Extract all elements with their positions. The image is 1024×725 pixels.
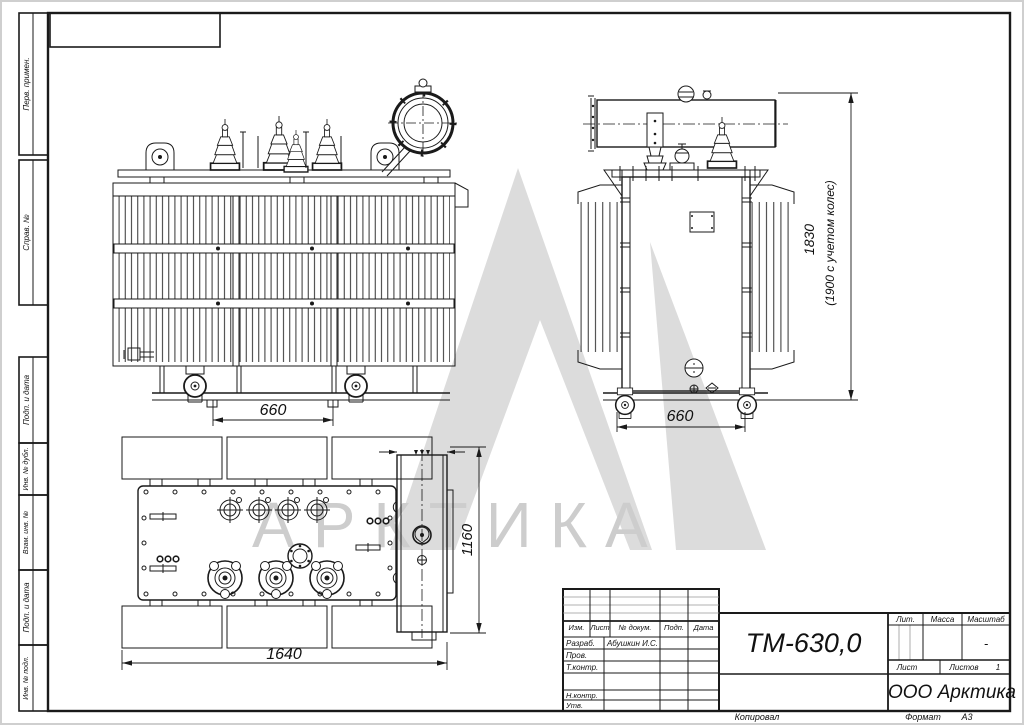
strip-vzam-inv: Взам. инв. № — [20, 495, 34, 570]
manhole — [288, 544, 312, 568]
row-tkontr: Т.контр. — [566, 664, 598, 672]
listov-label: Листов — [942, 664, 986, 672]
cover-bolt-circles — [142, 490, 392, 596]
hv-bushing — [313, 119, 342, 170]
wheel — [738, 388, 757, 419]
strip-podp-data-1: Подп. и дата — [20, 357, 34, 443]
strip-podp-data-2: Подп. и дата — [20, 570, 34, 645]
lifting-lug — [146, 143, 174, 170]
dim-side-660: 660 — [650, 409, 710, 425]
dim-height-1830: 1830 — [802, 192, 816, 287]
dim-front-660: 660 — [243, 403, 303, 419]
cover-fittings — [670, 144, 694, 170]
front-view — [113, 79, 468, 407]
undercarriage — [124, 348, 450, 407]
lv-bushings — [217, 497, 330, 523]
masshtab-value: - — [962, 637, 1010, 650]
razrab-name: Абушкин И.С. — [607, 640, 658, 648]
col-list: Лист — [590, 624, 610, 632]
hv-bushing — [211, 119, 240, 170]
list-label: Лист — [890, 664, 924, 672]
masshtab-label: Масштаб — [962, 616, 1010, 624]
col-data: Дата — [688, 624, 719, 632]
conservator — [583, 86, 788, 151]
row-prov: Пров. — [566, 652, 587, 660]
side-tank — [620, 177, 752, 393]
format-value: А3 — [954, 713, 980, 722]
side-bushing — [708, 117, 737, 168]
strip-perv-primen: Перв. примен. — [20, 13, 34, 155]
listov-value: 1 — [990, 664, 1006, 672]
row-razrab: Разраб. — [566, 640, 595, 648]
strip-inv-dubl: Инв. № дубл. — [20, 443, 34, 495]
dim-top-1640: 1640 — [254, 647, 314, 663]
format-label: Формат — [885, 713, 961, 722]
row-utv: Утв. — [566, 702, 583, 710]
top-left-stamp-box — [50, 13, 220, 47]
drawing-sheet: АРКТИКА — [0, 0, 1024, 725]
top-view — [122, 437, 453, 648]
kopiroval-label: Копировал — [707, 713, 807, 722]
company-name: ООО Арктика — [888, 683, 1010, 702]
dimension-lines — [122, 93, 858, 670]
strip-sprav-no: Справ. № — [20, 160, 34, 305]
dim-top-1160: 1160 — [461, 500, 475, 580]
strip-inv-podl: Инв. № подл. — [20, 645, 34, 711]
col-podp: Подп. — [660, 624, 688, 632]
wheel — [345, 366, 367, 402]
hv-bushings-top — [208, 561, 344, 599]
massa-label: Масса — [923, 616, 962, 624]
radiator-caps — [578, 185, 622, 369]
col-izm: Изм. — [563, 624, 590, 632]
conservator-top — [397, 449, 453, 640]
dim-height-note: (1900 с учетом колес) — [823, 154, 837, 332]
col-doc: № докум. — [610, 624, 660, 632]
wheel — [184, 366, 206, 402]
side-view — [578, 86, 794, 419]
wheel — [616, 388, 635, 419]
cover-details — [150, 502, 396, 583]
lifting-lug — [371, 143, 399, 170]
designation: ТМ-630,0 — [719, 630, 888, 657]
lit-label: Лит. — [888, 616, 923, 624]
conservator-bracket — [644, 113, 666, 170]
row-nkontr: Н.контр. — [566, 692, 598, 700]
